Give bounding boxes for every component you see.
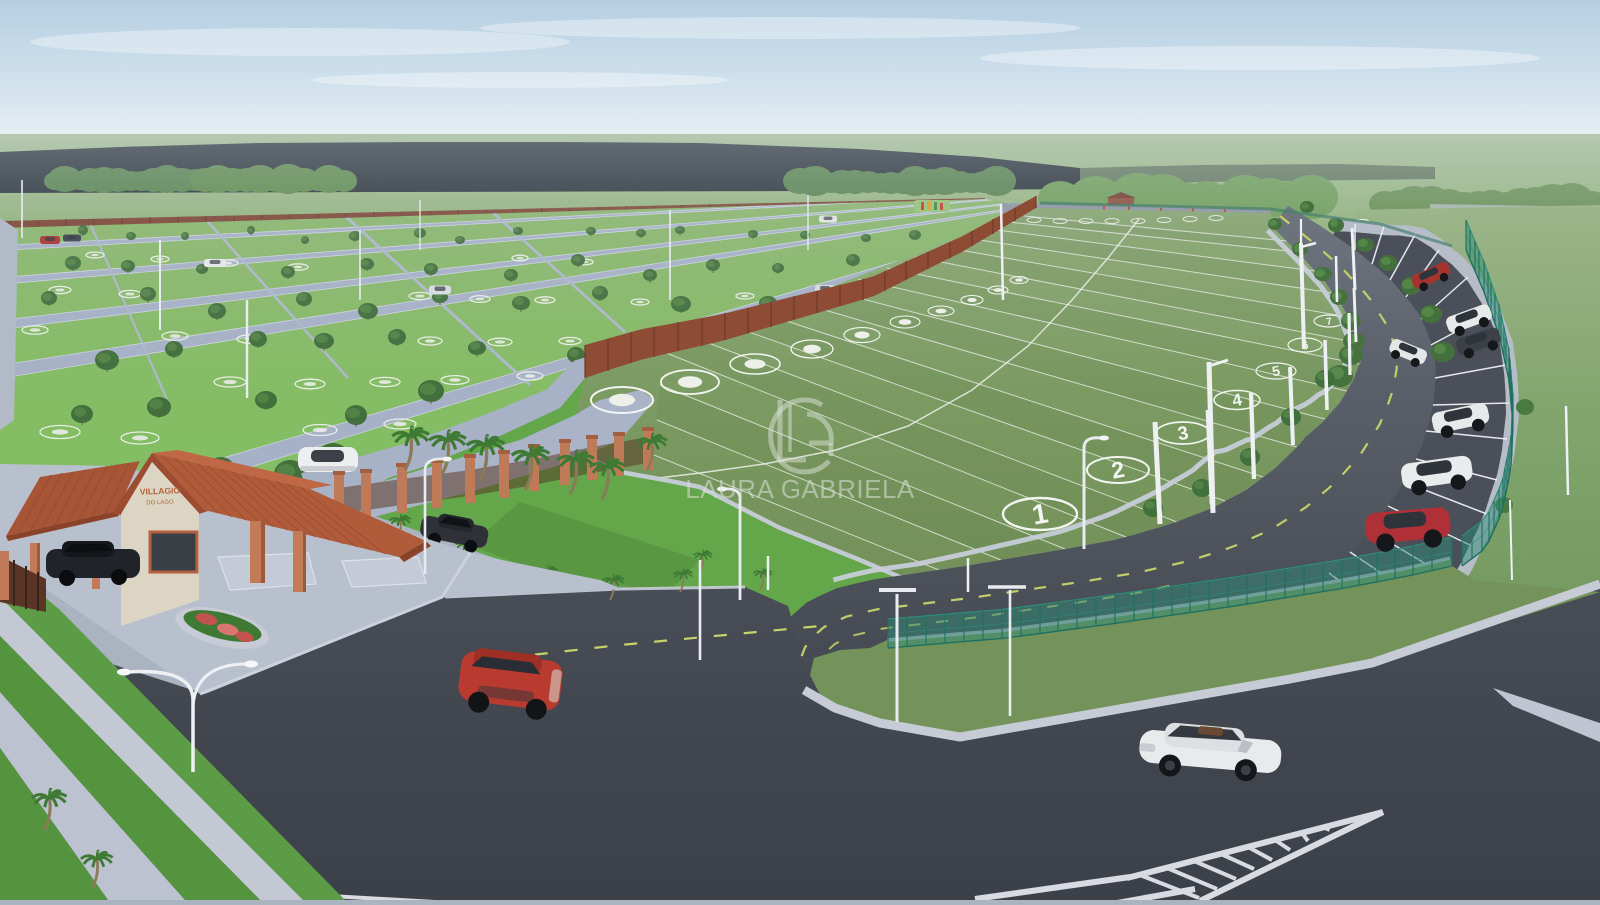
svg-text:LAURA GABRIELA: LAURA GABRIELA (685, 474, 915, 504)
svg-text:DO LAGO: DO LAGO (146, 500, 174, 507)
svg-text:VILLAGIO: VILLAGIO (140, 485, 181, 496)
